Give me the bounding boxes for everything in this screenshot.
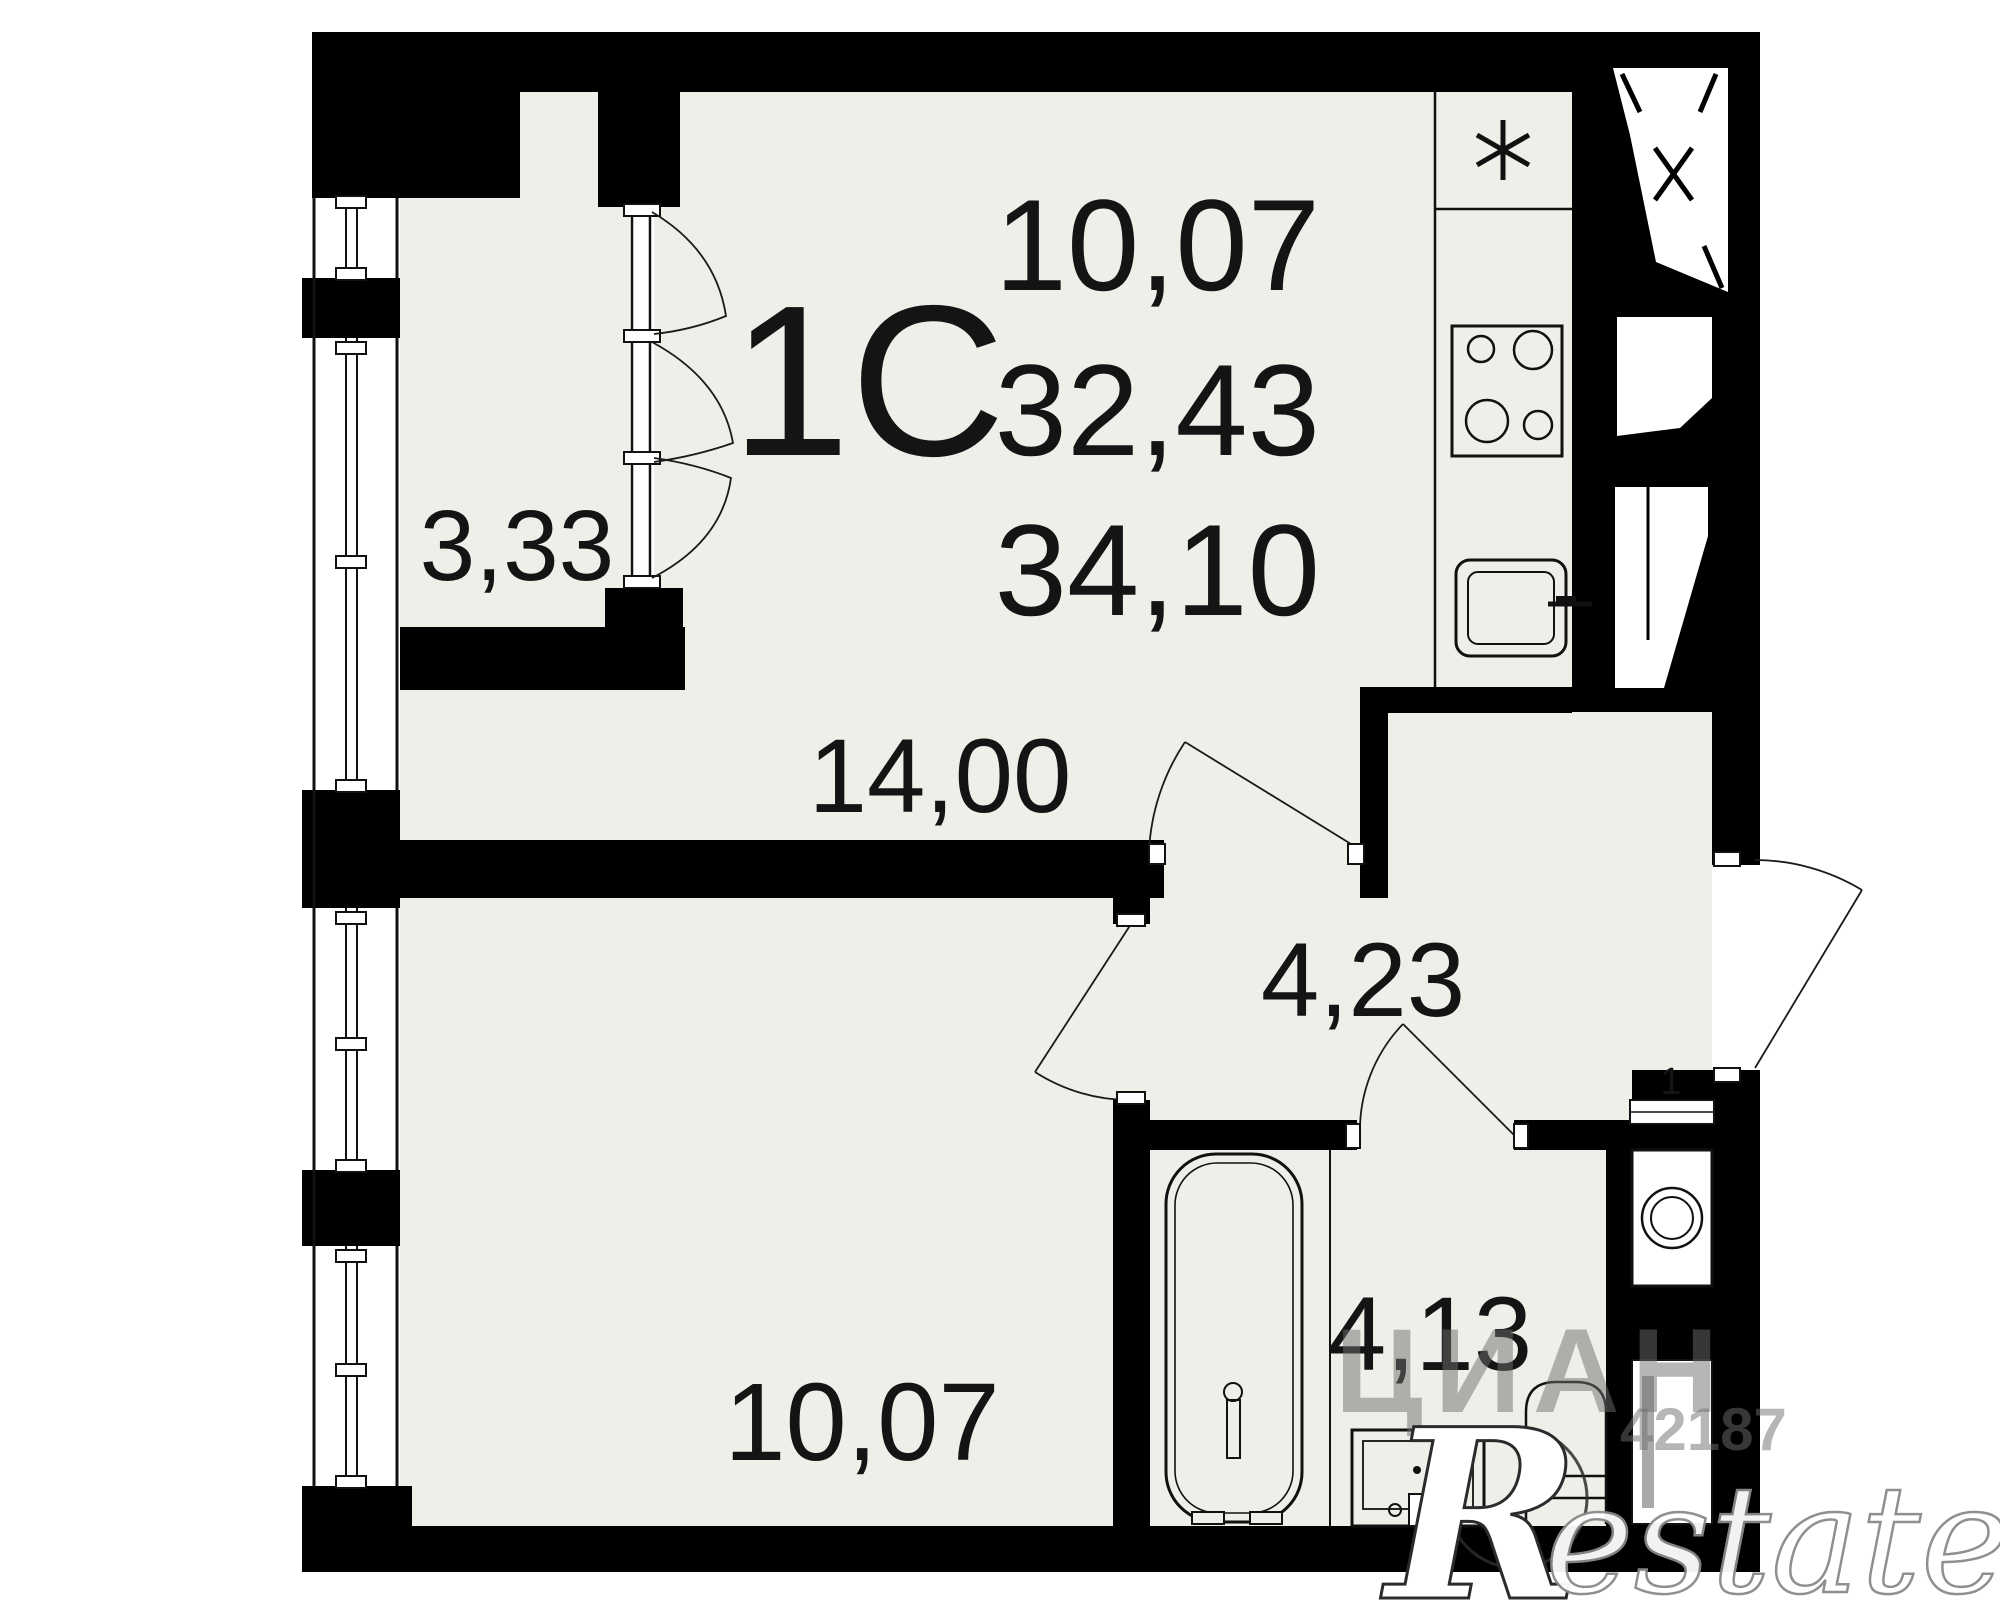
wall-hall-top [1360, 687, 1572, 713]
watermark-brand-text: estate [1545, 1454, 2000, 1600]
wall-bottom-left-corner [302, 1486, 412, 1572]
wall-top-left-corner [312, 32, 520, 198]
floor-plan-image: 1С 10,07 32,43 34,10 3,33 14,00 4,23 10,… [0, 0, 2000, 1600]
bathtub-icon [1166, 1154, 1302, 1524]
wall-right-upper [1712, 712, 1760, 865]
wall-loggia-partition-stub-bottom [605, 588, 683, 633]
kitchen-living-area-label: 14,00 [809, 718, 1072, 835]
threshold-vent [1630, 1100, 1714, 1124]
wall-left-pillar-1 [302, 278, 400, 338]
door-entry [1755, 860, 1862, 1068]
wall-divider [400, 840, 1164, 898]
wall-loggia-partition-stub-top [598, 92, 680, 207]
floor-plan-svg: 1С 10,07 32,43 34,10 3,33 14,00 4,23 10,… [0, 0, 2000, 1600]
wall-bath-top-left [1150, 1120, 1357, 1150]
unit-type-label: 1С [731, 260, 1006, 501]
door-mark-label: 1 [1660, 1061, 1681, 1103]
wall-room-right [1113, 1100, 1150, 1526]
stove-icon [1452, 326, 1562, 456]
door-swing-arc [1755, 860, 1862, 890]
watermark-listing-id: 42187 [1620, 1396, 1787, 1463]
door-leaf [1755, 890, 1862, 1068]
area-apartment-label: 32,43 [995, 337, 1320, 483]
wall-left-pillar-2 [302, 790, 400, 908]
hallway-area-label: 4,23 [1261, 922, 1465, 1039]
area-total-label: 34,10 [995, 497, 1320, 643]
area-living-label: 10,07 [995, 172, 1320, 318]
wall-top [312, 32, 1760, 92]
loggia-area-label: 3,33 [420, 490, 615, 602]
washing-machine-icon [1632, 1150, 1712, 1286]
watermarks: ЦИАН 42187 R estate [1335, 1304, 2000, 1600]
wall-hall-stub-column [1360, 687, 1388, 898]
room-area-label: 10,07 [724, 1361, 999, 1484]
wall-left-pillar-3 [302, 1170, 400, 1246]
wall-loggia-bottom [400, 627, 685, 690]
